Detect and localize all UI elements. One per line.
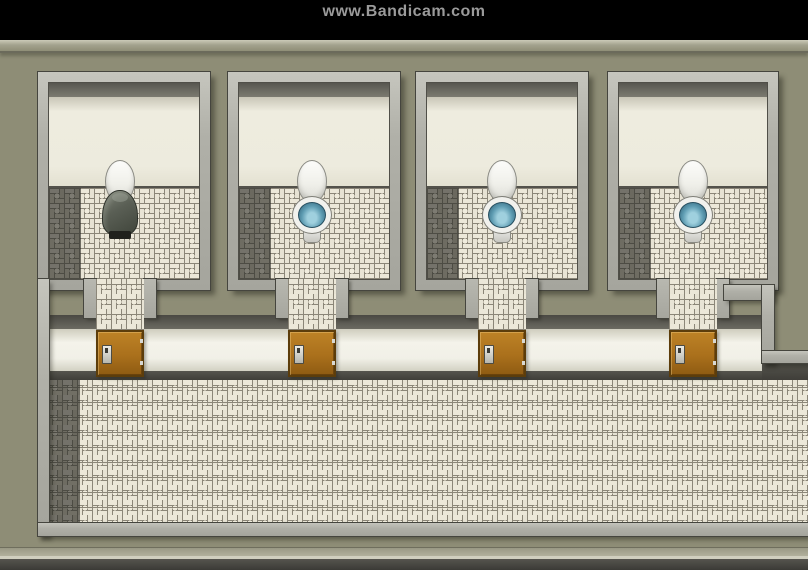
- game-screen[interactable]: www.Bandicam.com: [0, 0, 808, 570]
- doorway-jamb: [657, 279, 669, 318]
- stall-back-strip: [239, 83, 389, 97]
- toilet-3[interactable]: [487, 160, 517, 245]
- stall-back-strip: [427, 83, 577, 97]
- toilet-2[interactable]: [297, 160, 327, 245]
- toilet-4[interactable]: [678, 160, 708, 245]
- stall-floor-dark-column: [619, 188, 651, 279]
- stall-door-3[interactable]: [478, 330, 526, 377]
- bottom-boundary-wall: [38, 523, 808, 536]
- bandicam-watermark-bar: www.Bandicam.com: [0, 0, 808, 40]
- stall-back-strip: [49, 83, 199, 97]
- doorway-jamb: [84, 279, 96, 318]
- doorway-jamb: [526, 279, 538, 318]
- character-hooded-figure[interactable]: [102, 190, 138, 240]
- door-handle: [294, 345, 304, 364]
- stall-door-1[interactable]: [96, 330, 144, 377]
- toilet-water: [679, 202, 707, 228]
- stall-floor-dark-column: [427, 188, 459, 279]
- door-handle: [102, 345, 112, 364]
- character-feet: [109, 231, 131, 239]
- left-boundary-wall: [38, 279, 49, 536]
- hallway-wall: [47, 329, 762, 371]
- stall-floor-dark-column: [239, 188, 271, 279]
- doorway-tile-path-3: [478, 279, 526, 330]
- character-hood-highlight: [112, 193, 128, 202]
- toilet-water: [298, 202, 326, 228]
- doorway-jamb: [276, 279, 288, 318]
- door-handle: [675, 345, 685, 364]
- toilet-water: [488, 202, 516, 228]
- watermark-text: www.Bandicam.com: [323, 0, 486, 21]
- doorway-jamb: [336, 279, 348, 318]
- stall-door-2[interactable]: [288, 330, 336, 377]
- doorway-tile-path-2: [288, 279, 336, 330]
- stall-floor-dark-column: [49, 188, 81, 279]
- hallway-floor: [47, 380, 808, 523]
- doorway-tile-path-1: [96, 279, 144, 330]
- doorway-jamb: [466, 279, 478, 318]
- stall-back-strip: [619, 83, 767, 97]
- hallway-wall-bottom-strip-right: [762, 363, 808, 380]
- baseboard-dark-strip: [0, 559, 808, 570]
- hallway-wall-bottom-strip: [47, 371, 762, 380]
- doorway-jamb: [144, 279, 156, 318]
- stall-door-4[interactable]: [669, 330, 717, 377]
- hallway-floor-dark-column: [47, 380, 80, 523]
- doorway-tile-path-4: [669, 279, 717, 330]
- right-corner-wall-c: [762, 351, 808, 363]
- top-wall-edge: [0, 40, 808, 53]
- door-handle: [484, 345, 494, 364]
